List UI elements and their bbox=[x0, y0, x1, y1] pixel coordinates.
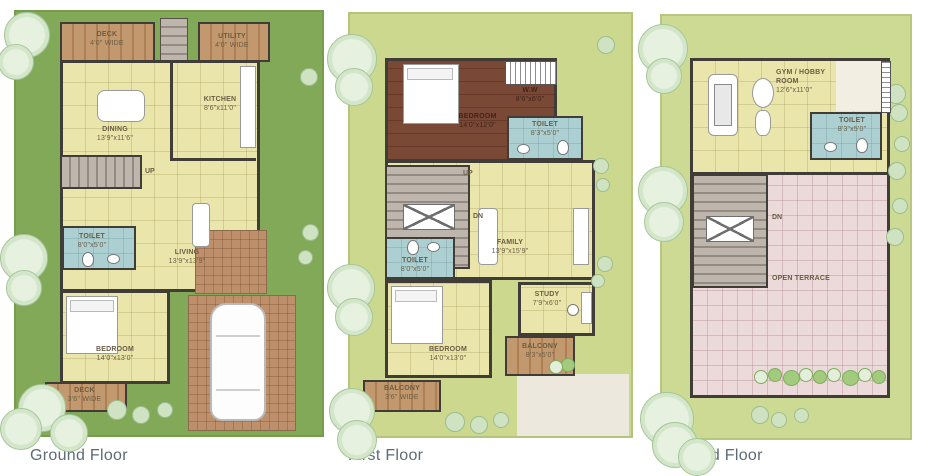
stairs-up-label: UP bbox=[463, 170, 473, 177]
deck-top-label: DECK 4'0" WIDE bbox=[67, 30, 147, 48]
room-dim: 8'3"x5'0" bbox=[824, 125, 880, 134]
bush-icon bbox=[470, 416, 488, 434]
sofa-icon bbox=[192, 203, 210, 247]
kitchen-label: KITCHEN 8'6"x11'0" bbox=[190, 95, 250, 113]
bush-icon bbox=[771, 412, 787, 428]
room-dim: 14'0"x13'0" bbox=[80, 354, 150, 363]
room-dim: 13'9"x15'9" bbox=[475, 247, 545, 256]
room-name: OPEN TERRACE bbox=[746, 274, 856, 283]
bush-icon bbox=[597, 36, 615, 54]
toilet-icon bbox=[407, 240, 419, 255]
bush-icon bbox=[300, 68, 318, 86]
pillow-icon bbox=[395, 290, 437, 302]
family-label: FAMILY 13'9"x15'9" bbox=[475, 238, 545, 256]
planter-icon bbox=[799, 368, 813, 382]
room-dim: 12'6"x11'0" bbox=[776, 86, 856, 95]
wardrobe bbox=[505, 61, 557, 85]
toilet-label: TOILET 8'0"x5'0" bbox=[64, 232, 120, 250]
tree-icon bbox=[644, 202, 684, 242]
gym-closet bbox=[881, 61, 891, 113]
room-dim: 8'0"x5'0" bbox=[64, 241, 120, 250]
bush-icon bbox=[445, 412, 465, 432]
second-floor-panel: GYM / HOBBY ROOM 12'6"x11'0" TOILET 8'3"… bbox=[656, 8, 920, 442]
room-name: DINING bbox=[80, 125, 150, 134]
balcony-right-label: BALCONY 8'3"x5'0" bbox=[505, 342, 575, 360]
kitchen-wall-bottom bbox=[170, 158, 256, 161]
room-dim: 13'9"x13'9" bbox=[152, 257, 222, 266]
room-dim: 8'6"x11'0" bbox=[190, 104, 250, 113]
open-terrace-label: OPEN TERRACE bbox=[746, 274, 856, 283]
stair-landing bbox=[706, 216, 754, 242]
patio bbox=[517, 374, 629, 436]
treadmill-belt bbox=[714, 84, 732, 126]
floor-plan-sheet: { "colors": { "plot_ground": "#82a957", … bbox=[0, 0, 930, 472]
stair-landing bbox=[403, 204, 455, 230]
dining-table-icon bbox=[97, 90, 145, 122]
bedroom-label: BEDROOM 14'0"x13'0" bbox=[80, 345, 150, 363]
bush-icon bbox=[157, 402, 173, 418]
sink-icon bbox=[824, 142, 837, 152]
bush-icon bbox=[302, 224, 319, 241]
planter-icon bbox=[754, 370, 768, 384]
room-dim: 13'9"x11'6" bbox=[80, 134, 150, 143]
master-bedroom-label: BEDROOM 14'0"x12'0" bbox=[440, 112, 515, 130]
bush-icon bbox=[751, 406, 769, 424]
planter-icon bbox=[858, 368, 872, 382]
bush-icon bbox=[132, 406, 150, 424]
room-name: TOILET bbox=[387, 256, 443, 265]
toilet-icon bbox=[557, 140, 569, 155]
bush-icon bbox=[298, 250, 313, 265]
room-name: DECK bbox=[67, 30, 147, 39]
planter-icon bbox=[768, 368, 782, 382]
ground-floor-panel: DECK 4'0" WIDE UTILITY 4'0" WIDE KITCHEN… bbox=[12, 8, 327, 440]
tree-icon bbox=[678, 438, 716, 476]
tree-icon bbox=[50, 414, 88, 452]
room-name: GYM / HOBBY bbox=[776, 68, 856, 77]
room-dim: 4'0" WIDE bbox=[192, 41, 272, 50]
planter-icon bbox=[783, 370, 800, 386]
room-dim: 8'6"x6'0" bbox=[500, 95, 560, 104]
tree-icon bbox=[646, 58, 682, 94]
first-floor-panel: BEDROOM 14'0"x12'0" W.W 8'6"x6'0" TOILET… bbox=[345, 8, 637, 440]
room-name: W.W bbox=[500, 86, 560, 95]
gym-label: GYM / HOBBY ROOM 12'6"x11'0" bbox=[776, 68, 856, 95]
bush-icon bbox=[892, 198, 908, 214]
bush-icon bbox=[597, 256, 613, 272]
bush-icon bbox=[886, 228, 904, 246]
room-dim: 8'0"x5'0" bbox=[387, 265, 443, 274]
room-dim: 14'0"x13'0" bbox=[413, 354, 483, 363]
room-name-2: ROOM bbox=[776, 77, 856, 86]
staircase bbox=[60, 155, 142, 189]
room-name: BALCONY bbox=[367, 384, 437, 393]
room-name: KITCHEN bbox=[190, 95, 250, 104]
room-name: BALCONY bbox=[505, 342, 575, 351]
ground-floor-caption: Ground Floor bbox=[30, 447, 128, 465]
stairs-up-label: UP bbox=[145, 168, 155, 175]
bush-icon bbox=[894, 136, 910, 152]
room-name: LIVING bbox=[152, 248, 222, 257]
toilet-label: TOILET 8'3"x5'0" bbox=[824, 116, 880, 134]
bush-icon bbox=[596, 178, 610, 192]
room-name: TOILET bbox=[824, 116, 880, 125]
planter-icon bbox=[827, 368, 841, 382]
room-name: TOILET bbox=[64, 232, 120, 241]
tree-icon bbox=[0, 408, 42, 450]
bush-icon bbox=[593, 158, 609, 174]
planter-icon bbox=[842, 370, 859, 386]
planter-icon bbox=[872, 370, 886, 384]
living-label: LIVING 13'9"x13'9" bbox=[152, 248, 222, 266]
toilet-label: TOILET 8'0"x5'0" bbox=[387, 256, 443, 274]
tree-icon bbox=[6, 270, 42, 306]
room-dim: 8'3"x5'0" bbox=[517, 129, 573, 138]
stairs-dn-label: DN bbox=[473, 213, 483, 220]
room-name: BEDROOM bbox=[440, 112, 515, 121]
utility-label: UTILITY 4'0" WIDE bbox=[192, 32, 272, 50]
sink-icon bbox=[517, 144, 530, 154]
bush-icon bbox=[888, 162, 906, 180]
exercise-bike-icon bbox=[752, 78, 774, 108]
dining-label: DINING 13'9"x11'6" bbox=[80, 125, 150, 143]
toilet-icon bbox=[82, 252, 94, 267]
ww-label: W.W 8'6"x6'0" bbox=[500, 86, 560, 104]
room-dim: 3'6" WIDE bbox=[52, 395, 117, 404]
pillow-icon bbox=[70, 300, 114, 312]
planter-icon bbox=[561, 358, 575, 372]
pillow-icon bbox=[407, 68, 453, 80]
stairs-dn-label: DN bbox=[772, 214, 782, 221]
room-dim: 14'0"x12'0" bbox=[440, 121, 515, 130]
toilet-icon bbox=[856, 138, 868, 153]
bush-icon bbox=[890, 104, 908, 122]
exercise-bike-seat bbox=[755, 110, 771, 136]
room-name: BEDROOM bbox=[413, 345, 483, 354]
deck-bottom-label: DECK 3'6" WIDE bbox=[52, 386, 117, 404]
room-name: DECK bbox=[52, 386, 117, 395]
study-chair-icon bbox=[567, 304, 579, 316]
planter-icon bbox=[813, 370, 827, 384]
room-name: BEDROOM bbox=[80, 345, 150, 354]
entry-steps bbox=[160, 18, 188, 66]
bush-icon bbox=[493, 412, 509, 428]
room-name: TOILET bbox=[517, 120, 573, 129]
bush-icon bbox=[591, 274, 605, 288]
bedroom-label: BEDROOM 14'0"x13'0" bbox=[413, 345, 483, 363]
tree-icon bbox=[335, 68, 373, 106]
sink-icon bbox=[107, 254, 120, 264]
desk-icon bbox=[581, 292, 592, 324]
balcony-bottom-label: BALCONY 3'6" WIDE bbox=[367, 384, 437, 402]
kitchen-wall bbox=[170, 62, 173, 160]
planter-icon bbox=[549, 360, 563, 374]
room-dim: 4'0" WIDE bbox=[67, 39, 147, 48]
master-toilet-label: TOILET 8'3"x5'0" bbox=[517, 120, 573, 138]
car-icon bbox=[210, 303, 266, 421]
bush-icon bbox=[794, 408, 809, 423]
tree-icon bbox=[335, 298, 373, 336]
room-name: STUDY bbox=[517, 290, 577, 299]
tree-icon bbox=[337, 420, 377, 460]
tv-unit-icon bbox=[573, 208, 589, 265]
room-name: FAMILY bbox=[475, 238, 545, 247]
sink-icon bbox=[427, 242, 440, 252]
room-name: UTILITY bbox=[192, 32, 272, 41]
room-dim: 3'6" WIDE bbox=[367, 393, 437, 402]
